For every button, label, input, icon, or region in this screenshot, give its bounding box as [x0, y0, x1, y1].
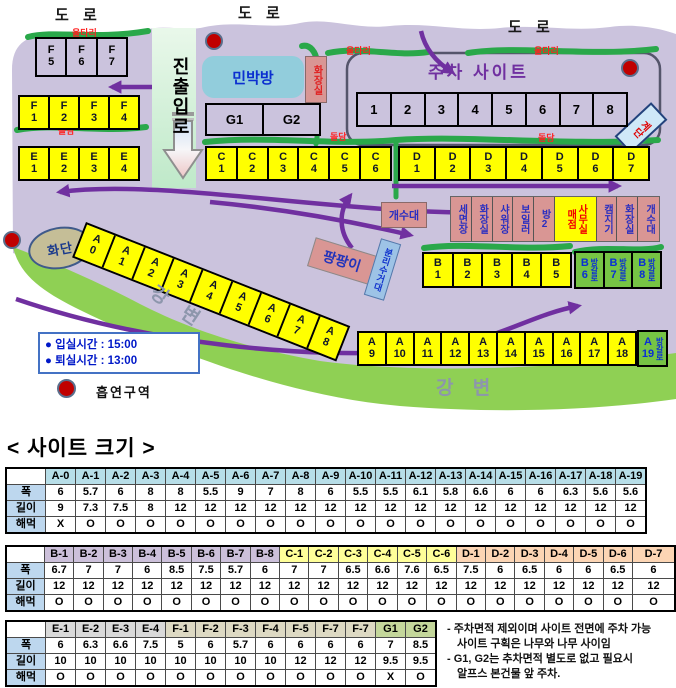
- value-cell: 12: [166, 501, 196, 517]
- site-row-f: F1F2F3F4: [18, 95, 140, 130]
- value-cell: O: [515, 595, 544, 612]
- site-B3: B3: [483, 254, 513, 286]
- value-cell: 12: [103, 579, 132, 595]
- value-cell: 7.5: [136, 638, 166, 654]
- col-header-B-8: B-8: [250, 546, 279, 563]
- site-A11: A11: [415, 333, 443, 364]
- site-row-d: D1D2D3D4D5D6D7: [398, 146, 650, 181]
- col-header-B-2: B-2: [74, 546, 103, 563]
- value-cell: 12: [191, 579, 220, 595]
- value-cell: 12: [466, 501, 496, 517]
- value-cell: 6.3: [556, 485, 586, 501]
- value-cell: O: [136, 670, 166, 687]
- parking-site-title: 주차 사이트: [428, 58, 529, 83]
- value-cell: 12: [515, 579, 544, 595]
- site-A18: A18: [609, 333, 635, 364]
- value-cell: 6: [133, 563, 162, 579]
- value-cell: O: [603, 595, 632, 612]
- col-header-B-6: B-6: [191, 546, 220, 563]
- site-a19-bungalow: A19방갈로: [637, 330, 668, 367]
- value-cell: O: [466, 517, 496, 534]
- value-cell: 12: [436, 501, 466, 517]
- value-cell: O: [280, 595, 309, 612]
- site-G1: G1: [207, 105, 264, 134]
- col-header-D-7: D-7: [632, 546, 675, 563]
- col-header-A-1: A-1: [76, 468, 106, 485]
- facility-row: 세면장화장실샤워장보일러방2매점사무실캠지기화장실개수대: [450, 196, 660, 242]
- col-header-D-2: D-2: [486, 546, 515, 563]
- value-cell: O: [76, 670, 106, 687]
- value-cell: 6.5: [338, 563, 367, 579]
- site-1: 1: [358, 94, 392, 125]
- col-header-A-5: A-5: [196, 468, 226, 485]
- col-header-D-1: D-1: [456, 546, 485, 563]
- note-line: 사이트 구획은 나무와 나무 사이임: [457, 637, 673, 652]
- col-header-A-7: A-7: [256, 468, 286, 485]
- value-cell: 12: [346, 501, 376, 517]
- col-header-F-2: F-2: [196, 621, 226, 638]
- value-cell: O: [456, 595, 485, 612]
- time-legend-box: ● 입실시간 : 15:00 ● 퇴실시간 : 13:00: [38, 332, 200, 374]
- site-F7: F7: [98, 39, 126, 75]
- stonewall-label-2: 돌담: [330, 130, 347, 143]
- value-cell: O: [586, 517, 616, 534]
- smoking-legend-dot: [57, 379, 76, 398]
- value-cell: 6.3: [76, 638, 106, 654]
- facility-화장실: 화장실: [472, 197, 493, 241]
- value-cell: 7: [74, 563, 103, 579]
- value-cell: O: [166, 517, 196, 534]
- size-table-title: < 사이트 크기 >: [7, 432, 676, 462]
- site-A16: A16: [554, 333, 582, 364]
- site-row-a-lower: A9A10A11A12A13A14A15A16A17A18: [357, 331, 637, 366]
- facility-개수대: 개수대: [638, 197, 659, 241]
- note-line: - 주차면적 제외이며 사이트 전면에 주차 가능: [447, 622, 673, 637]
- row-label-폭: 폭: [6, 638, 46, 654]
- col-header-D-3: D-3: [515, 546, 544, 563]
- value-cell: O: [44, 595, 73, 612]
- facility-샤워장: 샤워장: [493, 197, 514, 241]
- value-cell: O: [46, 670, 76, 687]
- value-cell: 10: [256, 654, 286, 670]
- value-cell: 5.6: [616, 485, 647, 501]
- value-cell: O: [427, 595, 456, 612]
- value-cell: O: [316, 517, 346, 534]
- sink-box: 개수대: [381, 202, 427, 228]
- value-cell: 12: [456, 579, 485, 595]
- value-cell: O: [191, 595, 220, 612]
- value-cell: 9.5: [406, 654, 437, 670]
- value-cell: O: [556, 517, 586, 534]
- value-cell: 5.5: [376, 485, 406, 501]
- value-cell: 10: [106, 654, 136, 670]
- value-cell: 6: [196, 638, 226, 654]
- value-cell: 12: [632, 579, 675, 595]
- col-header-A-19: A-19: [616, 468, 647, 485]
- value-cell: O: [397, 595, 426, 612]
- col-header-D-5: D-5: [574, 546, 603, 563]
- value-cell: 12: [316, 654, 346, 670]
- road-label-2: 도 로: [238, 2, 285, 23]
- col-header-A-10: A-10: [346, 468, 376, 485]
- value-cell: 6.5: [427, 563, 456, 579]
- value-cell: 7.3: [76, 501, 106, 517]
- value-cell: 7.5: [191, 563, 220, 579]
- value-cell: 6: [346, 638, 376, 654]
- col-header-A-4: A-4: [166, 468, 196, 485]
- value-cell: 12: [309, 579, 338, 595]
- value-cell: 10: [196, 654, 226, 670]
- value-cell: X: [376, 670, 406, 687]
- site-6: 6: [527, 94, 561, 125]
- value-cell: O: [616, 517, 647, 534]
- value-cell: 10: [46, 654, 76, 670]
- value-cell: 6: [316, 638, 346, 654]
- value-cell: 8.5: [162, 563, 191, 579]
- value-cell: 6: [316, 485, 346, 501]
- col-header-B-3: B-3: [103, 546, 132, 563]
- value-cell: 12: [616, 501, 647, 517]
- value-cell: 6.5: [515, 563, 544, 579]
- value-cell: O: [286, 670, 316, 687]
- facility-보일러: 보일러: [513, 197, 534, 241]
- value-cell: 12: [603, 579, 632, 595]
- river-label-2: 강 변: [436, 373, 497, 400]
- value-cell: 7.5: [106, 501, 136, 517]
- col-header-B-4: B-4: [133, 546, 162, 563]
- site-E4: E4: [110, 148, 138, 179]
- value-cell: 6.6: [106, 638, 136, 654]
- site-C4: C4: [299, 148, 330, 179]
- corner-cell: [6, 468, 46, 485]
- checkin-time: ● 입실시간 : 15:00: [45, 337, 193, 353]
- facility-세면장: 세면장: [451, 197, 472, 241]
- site-F2: F2: [50, 97, 80, 128]
- value-cell: 6: [46, 638, 76, 654]
- col-header-A-8: A-8: [286, 468, 316, 485]
- col-header-A-14: A-14: [466, 468, 496, 485]
- corner-cell: [6, 546, 44, 563]
- value-cell: O: [196, 670, 226, 687]
- site-B4: B4: [513, 254, 543, 286]
- value-cell: 7: [256, 485, 286, 501]
- col-header-A-11: A-11: [376, 468, 406, 485]
- value-cell: 6.5: [603, 563, 632, 579]
- value-cell: O: [486, 595, 515, 612]
- value-cell: 6: [544, 563, 573, 579]
- row-label-길이: 길이: [6, 501, 46, 517]
- value-cell: X: [46, 517, 76, 534]
- entrance-road-label: 진출입로: [157, 35, 193, 159]
- site-F1: F1: [20, 97, 50, 128]
- value-cell: 12: [316, 501, 346, 517]
- value-cell: O: [496, 517, 526, 534]
- guesthouse-box: 민박방: [202, 56, 304, 98]
- site-row-c: C1C2C3C4C5C6: [205, 146, 392, 181]
- value-cell: 5.5: [196, 485, 226, 501]
- value-cell: O: [106, 517, 136, 534]
- value-cell: 5.5: [346, 485, 376, 501]
- value-cell: 6: [486, 563, 515, 579]
- site-4: 4: [459, 94, 493, 125]
- value-cell: 6: [256, 638, 286, 654]
- value-cell: 12: [397, 579, 426, 595]
- site-row-f-top: F5F6F7: [35, 37, 128, 77]
- value-cell: 6: [574, 563, 603, 579]
- value-cell: 6.7: [44, 563, 73, 579]
- site-row-g: G1G2: [205, 103, 321, 136]
- value-cell: 12: [486, 579, 515, 595]
- checkout-time: ● 퇴실시간 : 13:00: [45, 353, 193, 369]
- site-size-table-bcd: B-1B-2B-3B-4B-5B-6B-7B-8C-1C-2C-3C-4C-5C…: [5, 545, 676, 612]
- value-cell: 8: [286, 485, 316, 501]
- value-cell: 6.1: [406, 485, 436, 501]
- col-header-A-6: A-6: [226, 468, 256, 485]
- value-cell: 12: [286, 654, 316, 670]
- col-header-A-3: A-3: [136, 468, 166, 485]
- site-B6: B6방갈로: [576, 253, 605, 287]
- value-cell: 12: [427, 579, 456, 595]
- value-cell: O: [221, 595, 250, 612]
- site-F6: F6: [67, 39, 97, 75]
- value-cell: O: [76, 517, 106, 534]
- row-label-해먹: 해먹: [6, 595, 44, 612]
- value-cell: O: [136, 517, 166, 534]
- site-D4: D4: [507, 148, 543, 179]
- col-header-C-2: C-2: [309, 546, 338, 563]
- col-header-A-16: A-16: [526, 468, 556, 485]
- value-cell: O: [632, 595, 675, 612]
- site-B8: B8방갈로: [633, 253, 660, 287]
- site-A13: A13: [470, 333, 498, 364]
- value-cell: 6: [106, 485, 136, 501]
- value-cell: O: [574, 595, 603, 612]
- value-cell: 12: [346, 654, 376, 670]
- value-cell: 5.6: [586, 485, 616, 501]
- value-cell: 6: [526, 485, 556, 501]
- site-D3: D3: [471, 148, 507, 179]
- value-cell: O: [162, 595, 191, 612]
- value-cell: 12: [74, 579, 103, 595]
- value-cell: 7: [376, 638, 406, 654]
- note-line: - G1, G2는 추차면적 별도로 없고 필요시: [447, 652, 673, 667]
- col-header-B-1: B-1: [44, 546, 73, 563]
- facility-방2: 방2: [534, 197, 555, 241]
- fence-label-2: 울타리: [346, 44, 371, 57]
- col-header-F-5: F-5: [286, 621, 316, 638]
- site-G2: G2: [264, 105, 319, 134]
- value-cell: 5.7: [76, 485, 106, 501]
- corner-cell: [6, 621, 46, 638]
- facility-매점-사무실: 매점사무실: [555, 197, 597, 241]
- site-F3: F3: [80, 97, 110, 128]
- campground-map: 도 로 도 로 도 로 울타리 울타리 울타리 돌담 돌담 돌담 진출입로 민박…: [0, 0, 676, 425]
- value-cell: O: [256, 517, 286, 534]
- value-cell: O: [74, 595, 103, 612]
- parking-notes: - 주차면적 제외이며 사이트 전면에 주차 가능사이트 구획은 나무와 나무 …: [447, 622, 673, 681]
- value-cell: 12: [226, 501, 256, 517]
- col-header-C-3: C-3: [338, 546, 367, 563]
- value-cell: O: [103, 595, 132, 612]
- site-A15: A15: [526, 333, 554, 364]
- site-B1: B1: [424, 254, 454, 286]
- site-A17: A17: [581, 333, 609, 364]
- site-A9: A9: [359, 333, 387, 364]
- value-cell: 12: [280, 579, 309, 595]
- value-cell: O: [338, 595, 367, 612]
- value-cell: 8: [136, 501, 166, 517]
- site-F5: F5: [37, 39, 67, 75]
- value-cell: 9: [226, 485, 256, 501]
- value-cell: 12: [44, 579, 73, 595]
- site-5: 5: [493, 94, 527, 125]
- value-cell: 5.7: [221, 563, 250, 579]
- value-cell: 6: [632, 563, 675, 579]
- value-cell: 7.5: [456, 563, 485, 579]
- value-cell: 12: [221, 579, 250, 595]
- value-cell: O: [256, 670, 286, 687]
- col-header-C-6: C-6: [427, 546, 456, 563]
- value-cell: 5.7: [226, 638, 256, 654]
- col-header-B-7: B-7: [221, 546, 250, 563]
- site-2: 2: [392, 94, 426, 125]
- site-A14: A14: [498, 333, 526, 364]
- col-header-E-4: E-4: [136, 621, 166, 638]
- value-cell: 5: [166, 638, 196, 654]
- col-header-F-4: F-4: [256, 621, 286, 638]
- col-header-A-18: A-18: [586, 468, 616, 485]
- row-label-길이: 길이: [6, 579, 44, 595]
- value-cell: 5.8: [436, 485, 466, 501]
- value-cell: 12: [586, 501, 616, 517]
- site-B2: B2: [454, 254, 484, 286]
- row-label-폭: 폭: [6, 563, 44, 579]
- value-cell: 10: [166, 654, 196, 670]
- site-8: 8: [594, 94, 626, 125]
- value-cell: O: [346, 670, 376, 687]
- value-cell: O: [106, 670, 136, 687]
- site-C2: C2: [238, 148, 269, 179]
- smoking-dot-1: [205, 32, 223, 50]
- value-cell: O: [368, 595, 397, 612]
- site-D6: D6: [579, 148, 615, 179]
- smoking-dot-2: [621, 59, 639, 77]
- col-header-A-2: A-2: [106, 468, 136, 485]
- facility-화장실: 화장실: [617, 197, 638, 241]
- value-cell: O: [196, 517, 226, 534]
- value-cell: 8: [136, 485, 166, 501]
- value-cell: O: [226, 670, 256, 687]
- value-cell: O: [544, 595, 573, 612]
- col-header-A-0: A-0: [46, 468, 76, 485]
- value-cell: 8: [166, 485, 196, 501]
- col-header-A-17: A-17: [556, 468, 586, 485]
- value-cell: 6: [286, 638, 316, 654]
- note-line: 알프스 본건물 앞 주차.: [457, 667, 673, 682]
- value-cell: O: [436, 517, 466, 534]
- value-cell: 10: [226, 654, 256, 670]
- col-header-F-3: F-3: [226, 621, 256, 638]
- value-cell: 6: [496, 485, 526, 501]
- site-F4: F4: [110, 97, 138, 128]
- value-cell: 6: [46, 485, 76, 501]
- site-C6: C6: [361, 148, 390, 179]
- parking-slot-row: 12345678: [356, 92, 628, 127]
- road-label-3: 도 로: [508, 16, 555, 37]
- smoking-legend-label: 흡연구역: [96, 382, 152, 401]
- site-E2: E2: [50, 148, 80, 179]
- site-C3: C3: [269, 148, 300, 179]
- site-E1: E1: [20, 148, 50, 179]
- value-cell: 12: [574, 579, 603, 595]
- value-cell: O: [309, 595, 338, 612]
- col-header-B-5: B-5: [162, 546, 191, 563]
- value-cell: 7: [280, 563, 309, 579]
- value-cell: O: [166, 670, 196, 687]
- value-cell: 12: [338, 579, 367, 595]
- value-cell: O: [406, 670, 437, 687]
- value-cell: 9.5: [376, 654, 406, 670]
- col-header-E-3: E-3: [106, 621, 136, 638]
- smoking-dot-3: [3, 231, 21, 249]
- col-header-C-4: C-4: [368, 546, 397, 563]
- value-cell: O: [526, 517, 556, 534]
- col-header-D-6: D-6: [603, 546, 632, 563]
- value-cell: 12: [526, 501, 556, 517]
- value-cell: 12: [256, 501, 286, 517]
- value-cell: 7: [309, 563, 338, 579]
- road-label-1: 도 로: [55, 4, 102, 25]
- site-A10: A10: [387, 333, 415, 364]
- col-header-A-9: A-9: [316, 468, 346, 485]
- value-cell: O: [316, 670, 346, 687]
- value-cell: 12: [496, 501, 526, 517]
- col-header-A-12: A-12: [406, 468, 436, 485]
- site-C5: C5: [330, 148, 361, 179]
- col-header-G2: G2: [406, 621, 437, 638]
- value-cell: 12: [368, 579, 397, 595]
- site-row-b-bungalow: B6방갈로B7방갈로B8방갈로: [574, 251, 662, 289]
- toilet-box-top: 화장실: [305, 56, 327, 103]
- col-header-C-1: C-1: [280, 546, 309, 563]
- value-cell: 9: [46, 501, 76, 517]
- site-E3: E3: [80, 148, 110, 179]
- site-D2: D2: [436, 148, 472, 179]
- value-cell: O: [406, 517, 436, 534]
- row-label-해먹: 해먹: [6, 670, 46, 687]
- value-cell: 10: [136, 654, 166, 670]
- value-cell: 7.6: [397, 563, 426, 579]
- site-D7: D7: [614, 148, 648, 179]
- site-size-table-efg: E-1E-2E-3E-4F-1F-2F-3F-4F-5F-7F-7G1G2폭66…: [5, 620, 437, 687]
- site-row-b: B1B2B3B4B5: [422, 252, 572, 288]
- value-cell: 12: [376, 501, 406, 517]
- site-B7: B7방갈로: [605, 253, 634, 287]
- site-row-e: E1E2E3E4: [18, 146, 140, 181]
- col-header-F-1: F-1: [166, 621, 196, 638]
- value-cell: 12: [556, 501, 586, 517]
- row-label-해먹: 해먹: [6, 517, 46, 534]
- col-header-D-4: D-4: [544, 546, 573, 563]
- site-C1: C1: [207, 148, 238, 179]
- value-cell: 10: [76, 654, 106, 670]
- col-header-F-7: F-7: [316, 621, 346, 638]
- value-cell: O: [133, 595, 162, 612]
- value-cell: 8.5: [406, 638, 437, 654]
- value-cell: 12: [196, 501, 226, 517]
- site-A19: A19방갈로: [639, 332, 666, 365]
- value-cell: 12: [162, 579, 191, 595]
